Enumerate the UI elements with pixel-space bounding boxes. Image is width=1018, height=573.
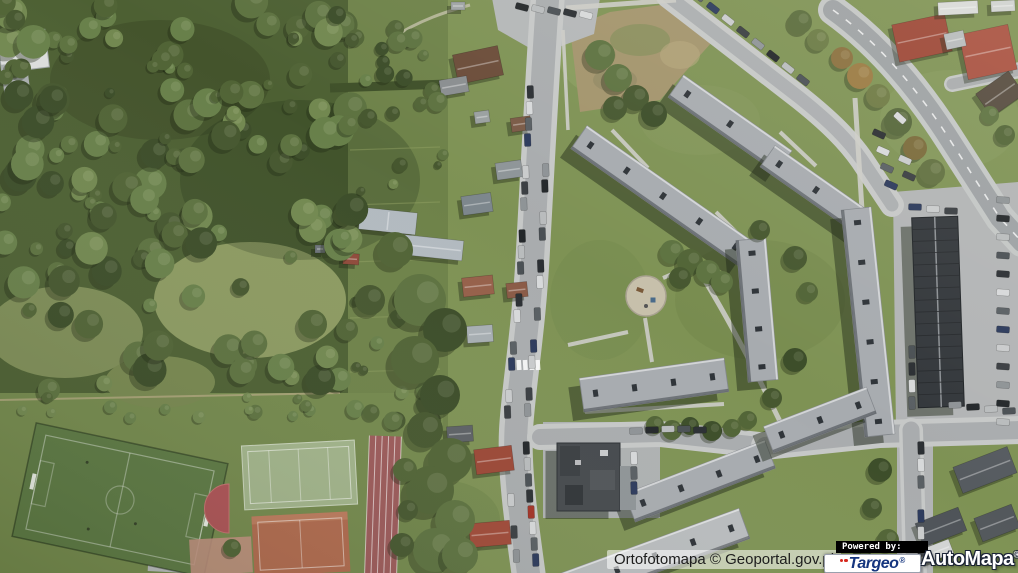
attribution-text: Ortofotomapa © Geoportal.gov.pl (614, 551, 834, 568)
targeo-registered-mark: ® (899, 556, 905, 565)
map-attribution: Ortofotomapa © Geoportal.gov.pl (607, 550, 841, 569)
targeo-wordmark: Targeo (849, 555, 899, 573)
powered-by-label: Powered by: (836, 541, 928, 553)
targeo-dots-icon (840, 559, 848, 563)
tone-overlay (0, 0, 1018, 573)
automapa-logo[interactable]: AutoMapa® (921, 548, 1018, 571)
automapa-wordmark: AutoMapa (921, 548, 1014, 570)
automapa-registered-mark: ® (1014, 549, 1018, 559)
map-viewport[interactable]: Ortofotomapa © Geoportal.gov.pl Powered … (0, 0, 1018, 573)
orthophoto-canvas (0, 0, 1018, 573)
targeo-logo[interactable]: Targeo ® (824, 554, 921, 573)
